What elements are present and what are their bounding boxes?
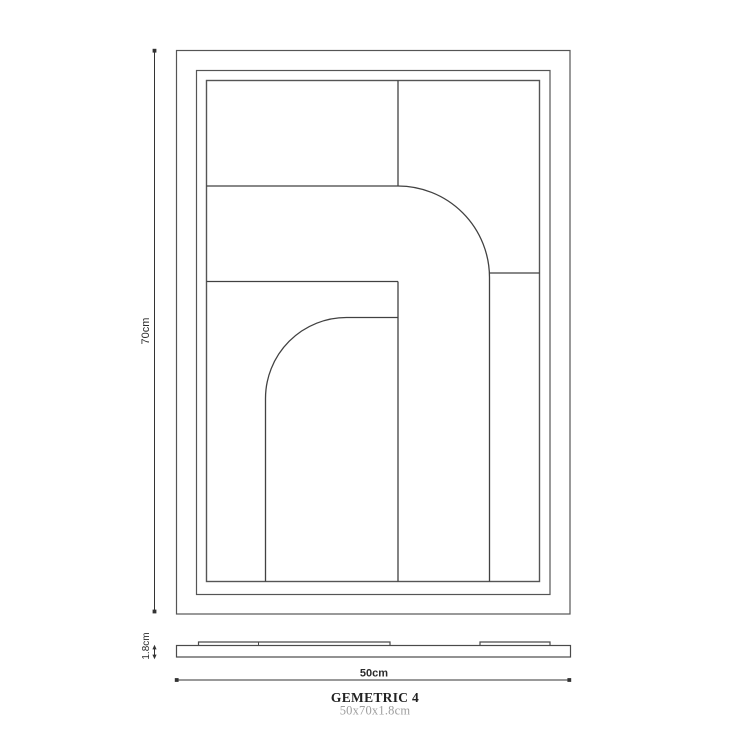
technical-drawing-canvas: 70cm 1.8cm 50cm GEMETRIC 4 50x70x1.8cm [0,0,750,750]
depth-dimension-label: 1.8cm [141,632,152,659]
height-dimension: 70cm [140,49,156,614]
width-dimension-left-dot [175,678,179,682]
depth-dimension: 1.8cm [141,632,156,659]
art-pattern [207,81,540,582]
height-dimension-bottom-dot [153,610,157,614]
side-profile-view [177,642,571,657]
width-dimension-right-dot [567,678,571,682]
caption: GEMETRIC 4 50x70x1.8cm [331,690,419,718]
frame-inner-rect [197,71,551,595]
art-small-arch-line [266,318,399,582]
depth-dimension-bottom-arrow [152,655,156,660]
art-large-curve-line [398,186,490,582]
width-dimension-label: 50cm [360,668,388,680]
caption-product-size: 50x70x1.8cm [340,704,411,718]
front-view-drawing [177,51,571,615]
width-dimension: 50cm [175,668,571,682]
side-panel-slab-rect [177,646,571,658]
depth-dimension-top-arrow [152,645,156,650]
frame-outer-rect [177,51,571,615]
drawing-page: 70cm 1.8cm 50cm GEMETRIC 4 50x70x1.8cm [0,0,750,750]
height-dimension-top-dot [153,49,157,53]
height-dimension-label: 70cm [140,318,152,345]
